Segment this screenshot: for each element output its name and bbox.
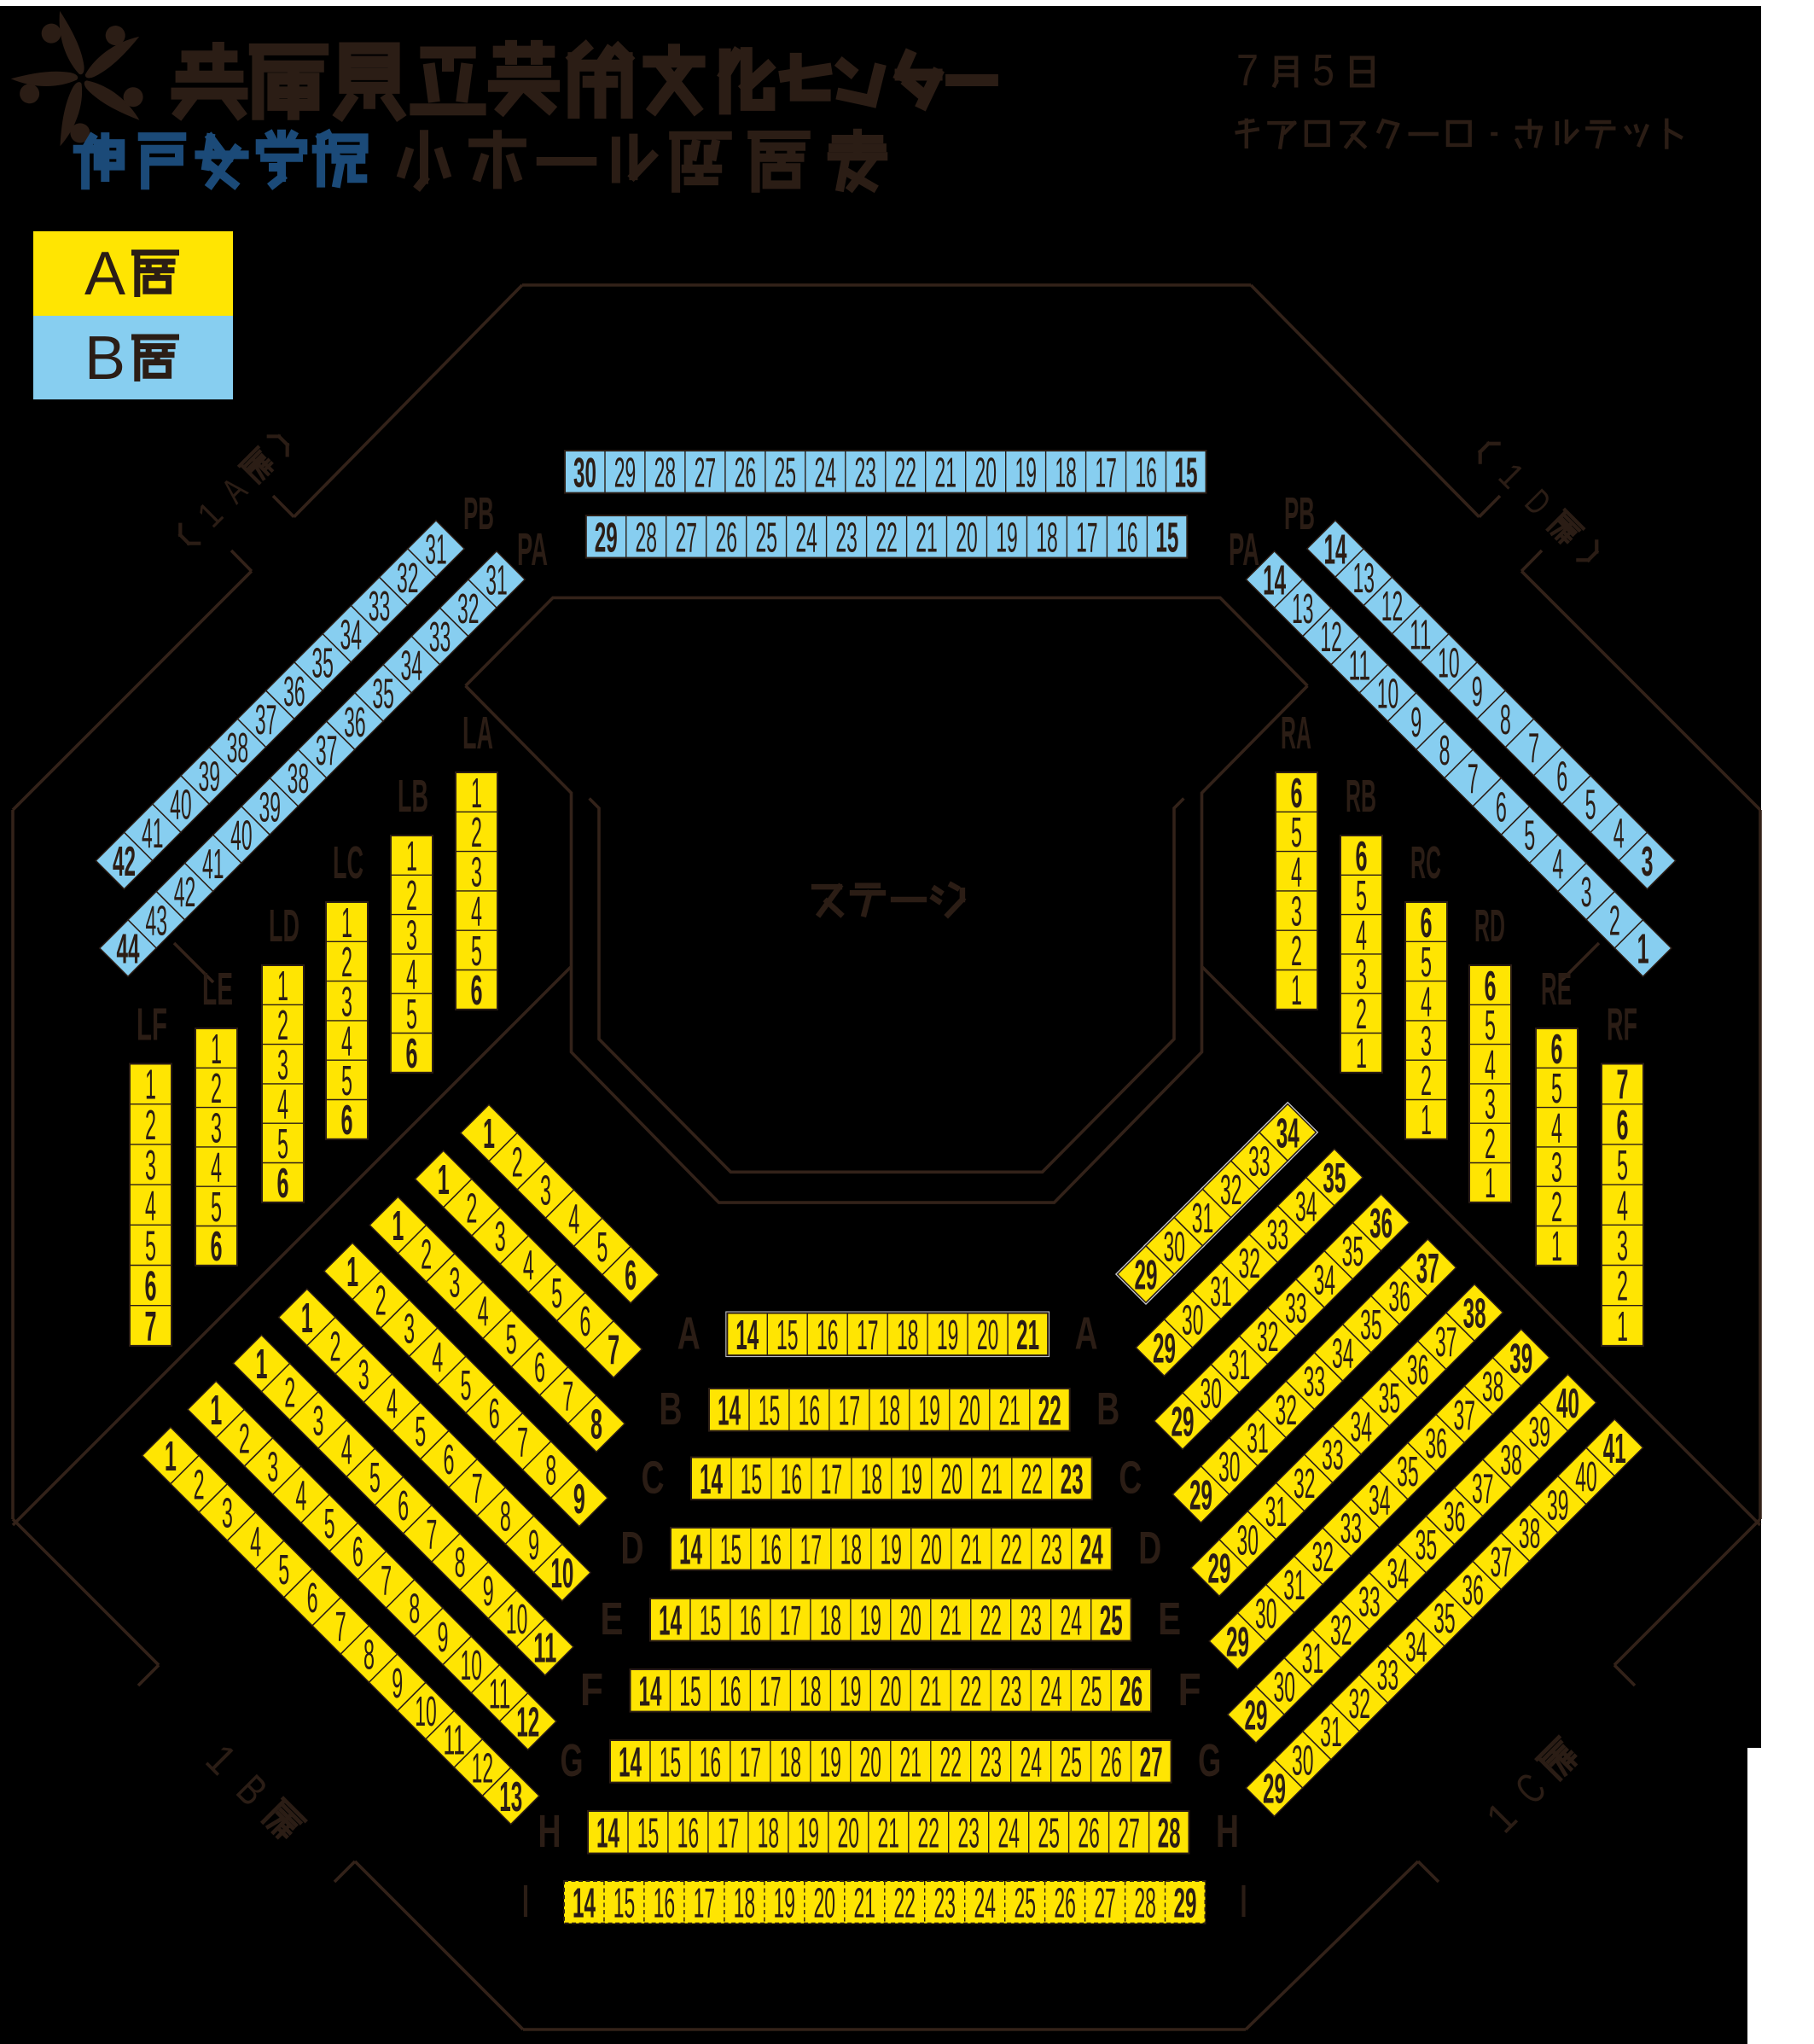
- svg-text:24: 24: [815, 450, 837, 496]
- svg-text:31: 31: [1192, 1196, 1214, 1242]
- svg-text:23: 23: [933, 1880, 956, 1926]
- svg-text:2: 2: [512, 1139, 523, 1185]
- svg-text:21: 21: [920, 1668, 942, 1715]
- svg-text:6: 6: [145, 1264, 157, 1310]
- svg-text:PB: PB: [1284, 488, 1315, 539]
- svg-text:28: 28: [1158, 1810, 1181, 1856]
- svg-text:3: 3: [404, 1307, 415, 1353]
- svg-text:A: A: [677, 1308, 701, 1360]
- svg-text:34: 34: [1295, 1184, 1317, 1230]
- svg-text:4: 4: [145, 1183, 156, 1229]
- svg-text:16: 16: [1116, 515, 1138, 561]
- svg-text:31: 31: [1302, 1636, 1324, 1682]
- svg-text:43: 43: [145, 898, 167, 944]
- svg-text:7: 7: [562, 1374, 573, 1420]
- svg-text:29: 29: [595, 515, 618, 561]
- svg-text:10: 10: [1377, 672, 1399, 718]
- svg-text:17: 17: [718, 1810, 740, 1856]
- svg-text:37: 37: [255, 697, 277, 743]
- svg-text:16: 16: [760, 1527, 782, 1573]
- svg-text:16: 16: [1135, 450, 1157, 496]
- svg-text:4: 4: [295, 1473, 306, 1519]
- svg-text:27: 27: [1118, 1810, 1140, 1856]
- svg-text:4: 4: [1613, 811, 1625, 857]
- svg-text:3: 3: [313, 1399, 324, 1445]
- svg-text:E: E: [601, 1593, 624, 1645]
- svg-text:23: 23: [957, 1810, 980, 1856]
- svg-text:35: 35: [372, 672, 394, 718]
- svg-text:12: 12: [516, 1700, 539, 1746]
- svg-text:33: 33: [1248, 1139, 1270, 1185]
- svg-text:8: 8: [455, 1540, 466, 1587]
- svg-text:29: 29: [614, 450, 637, 496]
- svg-text:32: 32: [1238, 1241, 1260, 1287]
- svg-text:6: 6: [1617, 1103, 1629, 1149]
- svg-text:5: 5: [596, 1225, 608, 1271]
- svg-text:40: 40: [1575, 1454, 1597, 1500]
- svg-text:7: 7: [517, 1420, 528, 1466]
- svg-text:34: 34: [1276, 1110, 1299, 1156]
- svg-text:7: 7: [1236, 46, 1259, 96]
- svg-text:21: 21: [961, 1527, 983, 1573]
- svg-text:37: 37: [316, 728, 338, 774]
- svg-text:34: 34: [1387, 1551, 1409, 1597]
- svg-text:40: 40: [170, 783, 192, 829]
- svg-text:31: 31: [1210, 1269, 1232, 1315]
- svg-text:LB: LB: [398, 771, 428, 822]
- svg-text:31: 31: [1283, 1563, 1305, 1609]
- svg-text:5: 5: [506, 1317, 517, 1363]
- svg-text:27: 27: [675, 515, 697, 561]
- svg-text:21: 21: [999, 1388, 1021, 1434]
- svg-text:24: 24: [1020, 1739, 1042, 1785]
- svg-text:6: 6: [534, 1345, 545, 1391]
- svg-text:19: 19: [820, 1739, 842, 1785]
- svg-text:1: 1: [1617, 1304, 1628, 1350]
- svg-text:4: 4: [1617, 1183, 1628, 1229]
- svg-text:F: F: [580, 1664, 603, 1715]
- svg-text:16: 16: [719, 1668, 741, 1715]
- svg-text:36: 36: [1425, 1421, 1447, 1467]
- svg-text:10: 10: [550, 1551, 573, 1597]
- svg-text:9: 9: [1472, 669, 1483, 715]
- svg-text:8: 8: [1439, 728, 1451, 774]
- svg-text:14: 14: [700, 1457, 723, 1503]
- svg-text:14: 14: [1324, 527, 1347, 574]
- svg-text:35: 35: [1433, 1596, 1456, 1642]
- svg-text:22: 22: [893, 1880, 916, 1926]
- svg-text:37: 37: [1491, 1540, 1513, 1586]
- svg-text:19: 19: [798, 1810, 820, 1856]
- svg-text:22: 22: [939, 1739, 962, 1785]
- svg-text:30: 30: [1218, 1444, 1241, 1490]
- svg-text:14: 14: [735, 1313, 759, 1359]
- svg-text:H: H: [1216, 1806, 1239, 1857]
- svg-text:22: 22: [1020, 1457, 1043, 1503]
- svg-text:6: 6: [489, 1391, 500, 1437]
- svg-text:22: 22: [917, 1810, 939, 1856]
- svg-text:I: I: [1241, 1876, 1247, 1927]
- svg-text:29: 29: [1153, 1326, 1176, 1372]
- svg-text:17: 17: [821, 1457, 843, 1503]
- svg-text:39: 39: [1529, 1409, 1551, 1455]
- svg-text:32: 32: [1294, 1461, 1316, 1507]
- svg-text:22: 22: [1000, 1527, 1022, 1573]
- svg-text:1: 1: [256, 1342, 268, 1388]
- svg-text:38: 38: [1482, 1365, 1504, 1411]
- svg-text:22: 22: [980, 1598, 1002, 1644]
- svg-text:7: 7: [426, 1512, 437, 1558]
- svg-text:5: 5: [145, 1224, 156, 1270]
- svg-text:11: 11: [1410, 612, 1432, 658]
- svg-text:12: 12: [1381, 584, 1404, 630]
- svg-text:A: A: [84, 240, 125, 308]
- svg-text:31: 31: [1247, 1416, 1269, 1462]
- svg-text:37: 37: [1416, 1246, 1439, 1292]
- svg-text:32: 32: [1348, 1681, 1370, 1727]
- svg-text:41: 41: [202, 841, 224, 888]
- svg-text:17: 17: [759, 1668, 782, 1715]
- svg-text:6: 6: [1496, 784, 1507, 830]
- svg-text:25: 25: [1100, 1598, 1123, 1644]
- svg-text:20: 20: [956, 515, 978, 561]
- svg-text:2: 2: [330, 1324, 341, 1370]
- svg-text:6: 6: [398, 1483, 409, 1529]
- svg-text:2: 2: [284, 1370, 295, 1416]
- svg-text:7: 7: [335, 1604, 346, 1651]
- svg-text:1: 1: [1551, 1224, 1562, 1270]
- svg-text:LD: LD: [269, 900, 299, 952]
- svg-text:33: 33: [369, 584, 391, 630]
- svg-text:LA: LA: [462, 708, 493, 759]
- svg-text:18: 18: [840, 1527, 863, 1573]
- svg-text:8: 8: [590, 1402, 602, 1448]
- svg-text:10: 10: [415, 1689, 437, 1735]
- svg-text:34: 34: [1405, 1624, 1427, 1670]
- svg-text:18: 18: [820, 1598, 842, 1644]
- svg-text:29: 29: [1208, 1546, 1231, 1593]
- svg-text:16: 16: [740, 1598, 762, 1644]
- svg-text:6: 6: [579, 1299, 590, 1345]
- svg-text:13: 13: [499, 1774, 522, 1820]
- svg-text:PB: PB: [463, 488, 494, 539]
- svg-text:17: 17: [857, 1313, 879, 1359]
- svg-text:17: 17: [740, 1739, 762, 1785]
- svg-text:16: 16: [799, 1388, 821, 1434]
- svg-text:13: 13: [1292, 586, 1314, 632]
- svg-text:4: 4: [523, 1243, 534, 1289]
- svg-text:31: 31: [1229, 1342, 1251, 1389]
- svg-text:15: 15: [1155, 515, 1178, 561]
- svg-text:7: 7: [1468, 756, 1479, 802]
- svg-text:32: 32: [1311, 1534, 1334, 1581]
- svg-text:37: 37: [1435, 1319, 1457, 1366]
- svg-text:3: 3: [1581, 870, 1592, 916]
- svg-text:3: 3: [1617, 1224, 1628, 1270]
- svg-text:18: 18: [1036, 515, 1058, 561]
- svg-text:34: 34: [1369, 1477, 1391, 1523]
- svg-text:33: 33: [1304, 1360, 1326, 1406]
- svg-text:14: 14: [718, 1388, 741, 1434]
- svg-text:6: 6: [444, 1437, 455, 1483]
- svg-text:14: 14: [679, 1527, 702, 1573]
- svg-text:36: 36: [1369, 1201, 1392, 1247]
- svg-text:9: 9: [483, 1569, 494, 1615]
- svg-text:3: 3: [540, 1168, 551, 1214]
- svg-text:1: 1: [1356, 1031, 1367, 1077]
- svg-text:3: 3: [358, 1353, 369, 1399]
- svg-text:40: 40: [230, 813, 253, 859]
- svg-text:LF: LF: [137, 999, 167, 1051]
- svg-text:16: 16: [700, 1739, 722, 1785]
- svg-text:17: 17: [1076, 515, 1098, 561]
- svg-text:20: 20: [959, 1388, 981, 1434]
- svg-text:4: 4: [387, 1381, 398, 1427]
- svg-text:19: 19: [774, 1880, 796, 1926]
- svg-text:23: 23: [855, 450, 877, 496]
- svg-text:32: 32: [1220, 1168, 1242, 1214]
- svg-text:1: 1: [301, 1296, 313, 1342]
- svg-text:31: 31: [1320, 1709, 1342, 1756]
- svg-text:18: 18: [780, 1739, 802, 1785]
- svg-text:23: 23: [1061, 1457, 1084, 1503]
- svg-text:5: 5: [461, 1363, 472, 1409]
- svg-text:15: 15: [637, 1810, 660, 1856]
- svg-text:F: F: [1178, 1664, 1201, 1715]
- svg-text:12: 12: [472, 1746, 494, 1792]
- svg-text:36: 36: [1444, 1494, 1466, 1540]
- svg-text:36: 36: [1388, 1274, 1410, 1320]
- svg-text:15: 15: [700, 1598, 722, 1644]
- svg-text:27: 27: [1094, 1880, 1116, 1926]
- svg-text:17: 17: [800, 1527, 823, 1573]
- svg-text:LE: LE: [202, 964, 233, 1015]
- svg-text:17: 17: [780, 1598, 802, 1644]
- svg-text:4: 4: [250, 1519, 261, 1565]
- svg-text:G: G: [1198, 1735, 1221, 1786]
- svg-text:29: 29: [1172, 1400, 1195, 1446]
- svg-text:30: 30: [1255, 1591, 1277, 1637]
- svg-text:17: 17: [694, 1880, 716, 1926]
- svg-text:38: 38: [1519, 1511, 1541, 1558]
- svg-text:19: 19: [860, 1598, 882, 1644]
- svg-text:1: 1: [438, 1157, 450, 1203]
- svg-text:A: A: [1075, 1308, 1098, 1360]
- svg-text:2: 2: [1609, 898, 1620, 944]
- svg-text:1: 1: [1291, 968, 1302, 1014]
- svg-text:1: 1: [1421, 1098, 1432, 1144]
- svg-text:7: 7: [145, 1304, 157, 1350]
- svg-text:I: I: [522, 1876, 529, 1927]
- svg-text:28: 28: [1134, 1880, 1156, 1926]
- svg-text:19: 19: [1015, 450, 1037, 496]
- svg-text:B: B: [84, 324, 125, 393]
- svg-text:18: 18: [734, 1880, 756, 1926]
- svg-text:3: 3: [1642, 839, 1654, 885]
- svg-text:13: 13: [1352, 556, 1375, 602]
- svg-text:35: 35: [311, 641, 334, 687]
- svg-text:21: 21: [940, 1598, 962, 1644]
- svg-text:4: 4: [1552, 841, 1563, 888]
- svg-text:33: 33: [1285, 1286, 1307, 1332]
- svg-text:14: 14: [659, 1598, 682, 1644]
- svg-text:39: 39: [1547, 1482, 1569, 1529]
- svg-text:24: 24: [974, 1880, 996, 1926]
- svg-text:35: 35: [1397, 1449, 1419, 1495]
- svg-text:7: 7: [1528, 725, 1539, 772]
- svg-text:38: 38: [1500, 1438, 1522, 1484]
- svg-text:8: 8: [363, 1633, 375, 1679]
- svg-text:7: 7: [381, 1558, 392, 1604]
- svg-text:24: 24: [1080, 1527, 1103, 1573]
- svg-text:3: 3: [222, 1491, 233, 1537]
- svg-text:2: 2: [466, 1185, 477, 1232]
- svg-text:30: 30: [1236, 1517, 1259, 1564]
- svg-text:21: 21: [900, 1739, 922, 1785]
- svg-text:33: 33: [1377, 1653, 1399, 1699]
- svg-text:6: 6: [471, 968, 483, 1014]
- svg-text:LC: LC: [333, 837, 363, 888]
- svg-text:20: 20: [921, 1527, 943, 1573]
- svg-text:32: 32: [397, 556, 419, 602]
- svg-text:6: 6: [352, 1529, 363, 1575]
- svg-text:1: 1: [1485, 1161, 1496, 1207]
- svg-text:15: 15: [776, 1313, 799, 1359]
- svg-text:5: 5: [1617, 1143, 1628, 1189]
- svg-text:21: 21: [916, 515, 938, 561]
- svg-text:28: 28: [654, 450, 677, 496]
- svg-text:9: 9: [573, 1476, 585, 1523]
- svg-text:33: 33: [1358, 1580, 1381, 1626]
- svg-text:15: 15: [741, 1457, 763, 1503]
- svg-text:29: 29: [1189, 1473, 1212, 1519]
- svg-text:1: 1: [346, 1249, 358, 1296]
- svg-text:5: 5: [1524, 813, 1535, 859]
- svg-text:11: 11: [489, 1671, 511, 1717]
- svg-text:20: 20: [977, 1313, 999, 1359]
- svg-text:20: 20: [880, 1668, 902, 1715]
- svg-text:C: C: [642, 1453, 665, 1504]
- svg-text:7: 7: [472, 1466, 483, 1512]
- svg-text:16: 16: [781, 1457, 803, 1503]
- svg-text:24: 24: [1040, 1668, 1062, 1715]
- svg-text:8: 8: [545, 1448, 556, 1494]
- svg-text:4: 4: [432, 1335, 443, 1381]
- svg-text:14: 14: [573, 1880, 596, 1926]
- svg-text:29: 29: [1245, 1693, 1268, 1739]
- svg-text:10: 10: [1438, 641, 1460, 687]
- svg-text:6: 6: [277, 1161, 289, 1207]
- svg-text:20: 20: [814, 1880, 836, 1926]
- svg-text:14: 14: [1263, 558, 1286, 604]
- svg-text:20: 20: [838, 1810, 860, 1856]
- svg-text:31: 31: [485, 558, 508, 604]
- svg-text:26: 26: [735, 450, 757, 496]
- svg-text:19: 19: [840, 1668, 862, 1715]
- svg-text:25: 25: [755, 515, 777, 561]
- svg-text:21: 21: [934, 450, 956, 496]
- svg-text:8: 8: [500, 1494, 511, 1540]
- svg-text:11: 11: [1349, 643, 1371, 689]
- svg-text:7: 7: [1617, 1063, 1629, 1109]
- svg-text:11: 11: [443, 1717, 465, 1763]
- svg-text:11: 11: [533, 1625, 556, 1671]
- svg-text:10: 10: [461, 1643, 483, 1689]
- svg-text:2: 2: [1617, 1264, 1628, 1310]
- svg-text:15: 15: [759, 1388, 781, 1434]
- svg-text:30: 30: [1182, 1297, 1204, 1343]
- svg-text:6: 6: [1556, 754, 1567, 800]
- svg-text:22: 22: [875, 515, 898, 561]
- svg-text:32: 32: [1257, 1314, 1279, 1360]
- svg-text:9: 9: [1410, 700, 1422, 746]
- svg-text:9: 9: [528, 1523, 539, 1569]
- svg-text:42: 42: [113, 839, 136, 885]
- svg-text:27: 27: [1140, 1739, 1163, 1785]
- svg-text:15: 15: [1175, 450, 1198, 496]
- svg-text:35: 35: [1323, 1156, 1346, 1202]
- svg-text:D: D: [621, 1523, 644, 1574]
- svg-text:5: 5: [278, 1547, 289, 1593]
- svg-text:B: B: [660, 1383, 683, 1435]
- svg-text:29: 29: [1263, 1767, 1286, 1813]
- svg-text:16: 16: [677, 1810, 700, 1856]
- svg-text:2: 2: [375, 1278, 387, 1324]
- svg-text:RA: RA: [1281, 708, 1311, 759]
- svg-text:38: 38: [227, 725, 249, 772]
- svg-text:35: 35: [1360, 1302, 1382, 1348]
- svg-text:1: 1: [483, 1111, 495, 1157]
- svg-text:34: 34: [1313, 1257, 1335, 1303]
- svg-text:14: 14: [639, 1668, 662, 1715]
- svg-text:26: 26: [1100, 1739, 1122, 1785]
- svg-text:19: 19: [881, 1527, 903, 1573]
- svg-text:4: 4: [568, 1197, 579, 1243]
- svg-text:B: B: [1096, 1383, 1119, 1435]
- svg-text:3: 3: [267, 1445, 278, 1491]
- svg-text:40: 40: [1556, 1381, 1579, 1427]
- svg-text:4: 4: [478, 1289, 489, 1335]
- svg-text:26: 26: [1119, 1668, 1142, 1715]
- svg-text:18: 18: [1055, 450, 1077, 496]
- svg-text:RB: RB: [1346, 771, 1376, 822]
- svg-text:32: 32: [1330, 1608, 1352, 1654]
- svg-text:21: 21: [878, 1810, 900, 1856]
- svg-text:23: 23: [980, 1739, 1002, 1785]
- svg-text:5: 5: [324, 1501, 335, 1547]
- svg-text:5: 5: [1585, 783, 1596, 829]
- svg-text:34: 34: [1332, 1331, 1354, 1377]
- svg-text:18: 18: [799, 1668, 822, 1715]
- svg-text:36: 36: [283, 669, 305, 715]
- svg-text:18: 18: [879, 1388, 901, 1434]
- svg-text:44: 44: [117, 927, 140, 973]
- svg-text:15: 15: [613, 1880, 636, 1926]
- svg-text:30: 30: [1163, 1224, 1185, 1270]
- svg-text:G: G: [561, 1735, 584, 1786]
- svg-text:39: 39: [198, 754, 220, 800]
- svg-text:1: 1: [145, 1063, 156, 1109]
- svg-text:5: 5: [369, 1455, 381, 1501]
- svg-text:37: 37: [1454, 1393, 1476, 1439]
- svg-text:24: 24: [795, 515, 817, 561]
- svg-text:38: 38: [288, 756, 310, 802]
- svg-text:23: 23: [1000, 1668, 1022, 1715]
- svg-text:6: 6: [625, 1253, 637, 1299]
- svg-text:5: 5: [1312, 46, 1334, 96]
- svg-text:3: 3: [145, 1143, 156, 1189]
- svg-text:41: 41: [1603, 1426, 1626, 1472]
